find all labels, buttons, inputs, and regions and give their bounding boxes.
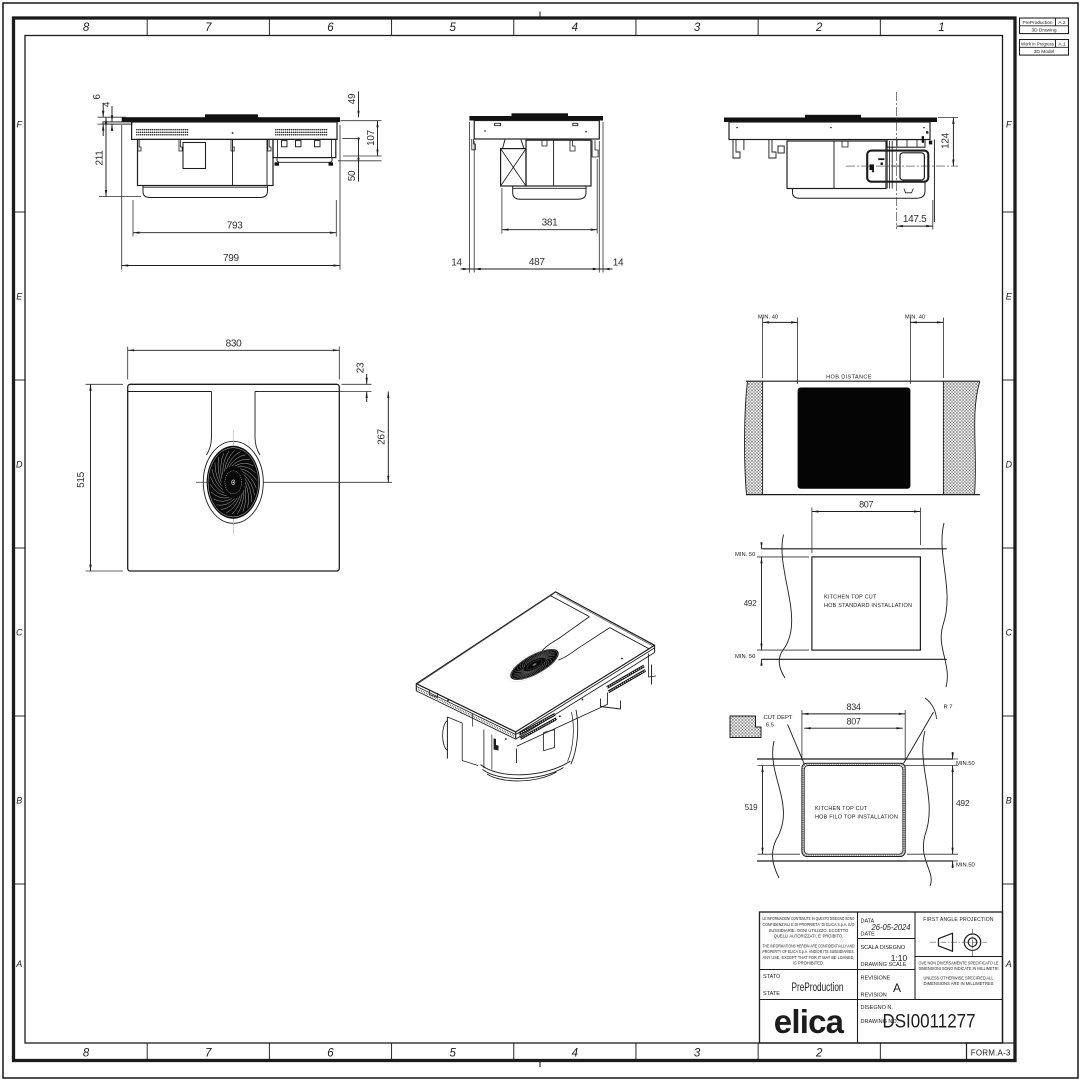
svg-text:CONFIDENZIALI E DI PROPRIETA': CONFIDENZIALI E DI PROPRIETA' DI ELICA S…	[763, 922, 855, 927]
svg-text:UNLESS OTHERWISE SPECIFIED ALL: UNLESS OTHERWISE SPECIFIED ALL	[924, 976, 995, 981]
svg-text:5: 5	[449, 1048, 456, 1060]
svg-text:DATE: DATE	[861, 932, 876, 938]
svg-text:MIN. 50: MIN. 50	[735, 552, 755, 558]
svg-text:50: 50	[347, 170, 358, 181]
svg-text:26-05-2024: 26-05-2024	[871, 922, 911, 932]
svg-text:PreProduction: PreProduction	[792, 982, 844, 994]
svg-text:3: 3	[694, 1048, 701, 1060]
svg-text:REVISIONE: REVISIONE	[861, 976, 891, 982]
svg-text:SCALA DISEGNO: SCALA DISEGNO	[861, 945, 906, 951]
svg-text:MIN. 40: MIN. 40	[758, 315, 778, 321]
svg-text:6: 6	[92, 94, 103, 100]
svg-text:FIRST ANGLE PROJECTION: FIRST ANGLE PROJECTION	[923, 917, 994, 923]
svg-text:MIN. 50: MIN. 50	[735, 654, 755, 660]
svg-text:5: 5	[449, 22, 456, 34]
svg-text:MIN.50: MIN.50	[956, 863, 975, 869]
svg-text:Work in Progress: Work in Progress	[1021, 41, 1055, 47]
svg-text:KITCHEN TOP CUT: KITCHEN TOP CUT	[824, 595, 877, 601]
svg-text:REVISION: REVISION	[861, 993, 887, 999]
svg-text:E: E	[1006, 292, 1013, 302]
svg-text:CUT DEPT: CUT DEPT	[764, 715, 793, 721]
svg-text:A.1: A.1	[1058, 41, 1066, 47]
svg-text:OVE NON DIVERSAMENTE SPECIFICA: OVE NON DIVERSAMENTE SPECIFICATO LE	[919, 961, 999, 966]
svg-text:A: A	[893, 981, 901, 995]
svg-text:MIN.50: MIN.50	[956, 761, 975, 767]
svg-text:KITCHEN TOP CUT: KITCHEN TOP CUT	[815, 806, 868, 812]
svg-text:830: 830	[226, 338, 243, 349]
svg-text:807: 807	[846, 717, 860, 727]
svg-text:HOB FILO TOP INSTALLATION: HOB FILO TOP INSTALLATION	[815, 815, 898, 821]
svg-text:MIN. 40: MIN. 40	[905, 315, 925, 321]
svg-text:PROPERTY OF ELICA S.p.A. AND/: PROPERTY OF ELICA S.p.A. AND/OR ITS SUBS…	[763, 949, 855, 954]
svg-text:3D Drawing: 3D Drawing	[1031, 28, 1056, 34]
svg-text:14: 14	[451, 258, 462, 269]
svg-text:elica: elica	[774, 1003, 845, 1040]
svg-text:ANY USE, EXCEPT THAT FOR IT MA: ANY USE, EXCEPT THAT FOR IT MAY BE LOANE…	[763, 955, 855, 960]
svg-text:IS PROHIBITED.: IS PROHIBITED.	[793, 961, 824, 966]
svg-text:HOB DISTANCE: HOB DISTANCE	[826, 374, 872, 380]
svg-text:381: 381	[542, 218, 559, 229]
svg-text:A: A	[1005, 959, 1012, 969]
svg-text:515: 515	[76, 471, 87, 488]
svg-text:4: 4	[572, 1048, 578, 1060]
svg-text:DIMENSIONI SONO INDICATE IN MI: DIMENSIONI SONO INDICATE IN MILLIMETRI	[919, 966, 999, 971]
svg-text:3D Model: 3D Model	[1034, 49, 1055, 55]
svg-text:519: 519	[745, 803, 758, 812]
svg-text:124: 124	[941, 132, 952, 149]
svg-text:B: B	[16, 796, 22, 806]
svg-text:107: 107	[366, 129, 377, 146]
svg-text:793: 793	[227, 221, 244, 232]
svg-text:B: B	[1006, 796, 1012, 806]
svg-text:492: 492	[744, 599, 757, 608]
svg-text:A: A	[15, 959, 22, 969]
svg-text:C: C	[1006, 628, 1013, 638]
svg-text:F: F	[1006, 119, 1012, 129]
svg-text:8: 8	[83, 22, 90, 34]
svg-text:492: 492	[956, 798, 970, 808]
svg-text:6: 6	[327, 1048, 334, 1060]
svg-text:HOB STANDARD INSTALLATION: HOB STANDARD INSTALLATION	[824, 603, 912, 609]
svg-text:6: 6	[327, 22, 334, 34]
svg-text:211: 211	[95, 150, 106, 166]
svg-text:799: 799	[223, 253, 240, 264]
svg-text:STATE: STATE	[763, 991, 780, 997]
svg-text:DSI0011277: DSI0011277	[883, 1011, 976, 1033]
svg-text:4: 4	[572, 22, 578, 34]
svg-text:49: 49	[347, 93, 358, 104]
svg-text:LE INFORMAZIONI CONTENUTE IN Q: LE INFORMAZIONI CONTENUTE IN QUESTO DISE…	[763, 916, 855, 921]
svg-text:THE INFORMATIONS HEREIN ARE CO: THE INFORMATIONS HEREIN ARE CONFIDENTIAL…	[763, 944, 855, 949]
svg-text:FORM.A-3: FORM.A-3	[971, 1049, 1011, 1058]
svg-text:147.5: 147.5	[903, 214, 927, 225]
svg-text:C: C	[16, 628, 23, 638]
svg-text:267: 267	[377, 428, 388, 445]
svg-text:R 7: R 7	[943, 705, 952, 711]
svg-text:E: E	[16, 292, 23, 302]
svg-text:F: F	[16, 119, 22, 129]
svg-text:2: 2	[815, 22, 823, 34]
svg-text:DIMENSIONS ARE IN MILLIMETRES: DIMENSIONS ARE IN MILLIMETRES	[924, 981, 994, 986]
svg-text:A.2: A.2	[1058, 20, 1066, 26]
svg-text:7: 7	[205, 22, 212, 34]
svg-text:834: 834	[846, 702, 860, 712]
svg-text:6.5: 6.5	[766, 723, 774, 729]
svg-text:2: 2	[815, 1048, 823, 1060]
svg-text:QUELLI AUTORIZZATI, E' PROIBIT: QUELLI AUTORIZZATI, E' PROIBITO.	[774, 934, 843, 939]
svg-text:3: 3	[694, 22, 701, 34]
svg-text:807: 807	[859, 500, 873, 510]
svg-text:4: 4	[102, 101, 113, 107]
svg-text:7: 7	[205, 1048, 212, 1060]
svg-text:14: 14	[613, 258, 624, 269]
svg-text:8: 8	[83, 1048, 90, 1060]
svg-text:23: 23	[356, 362, 367, 373]
svg-text:D: D	[1006, 460, 1013, 470]
svg-text:1: 1	[938, 22, 944, 34]
svg-text:PreProduction: PreProduction	[1023, 20, 1053, 26]
svg-text:STATO: STATO	[763, 974, 781, 980]
svg-text:1:10: 1:10	[891, 953, 908, 963]
svg-text:487: 487	[529, 257, 546, 268]
svg-text:D: D	[16, 460, 23, 470]
svg-text:SUSSIDIARIE. OGNI UTILIZZO, EC: SUSSIDIARIE. OGNI UTILIZZO, ECCETTO	[769, 928, 849, 933]
